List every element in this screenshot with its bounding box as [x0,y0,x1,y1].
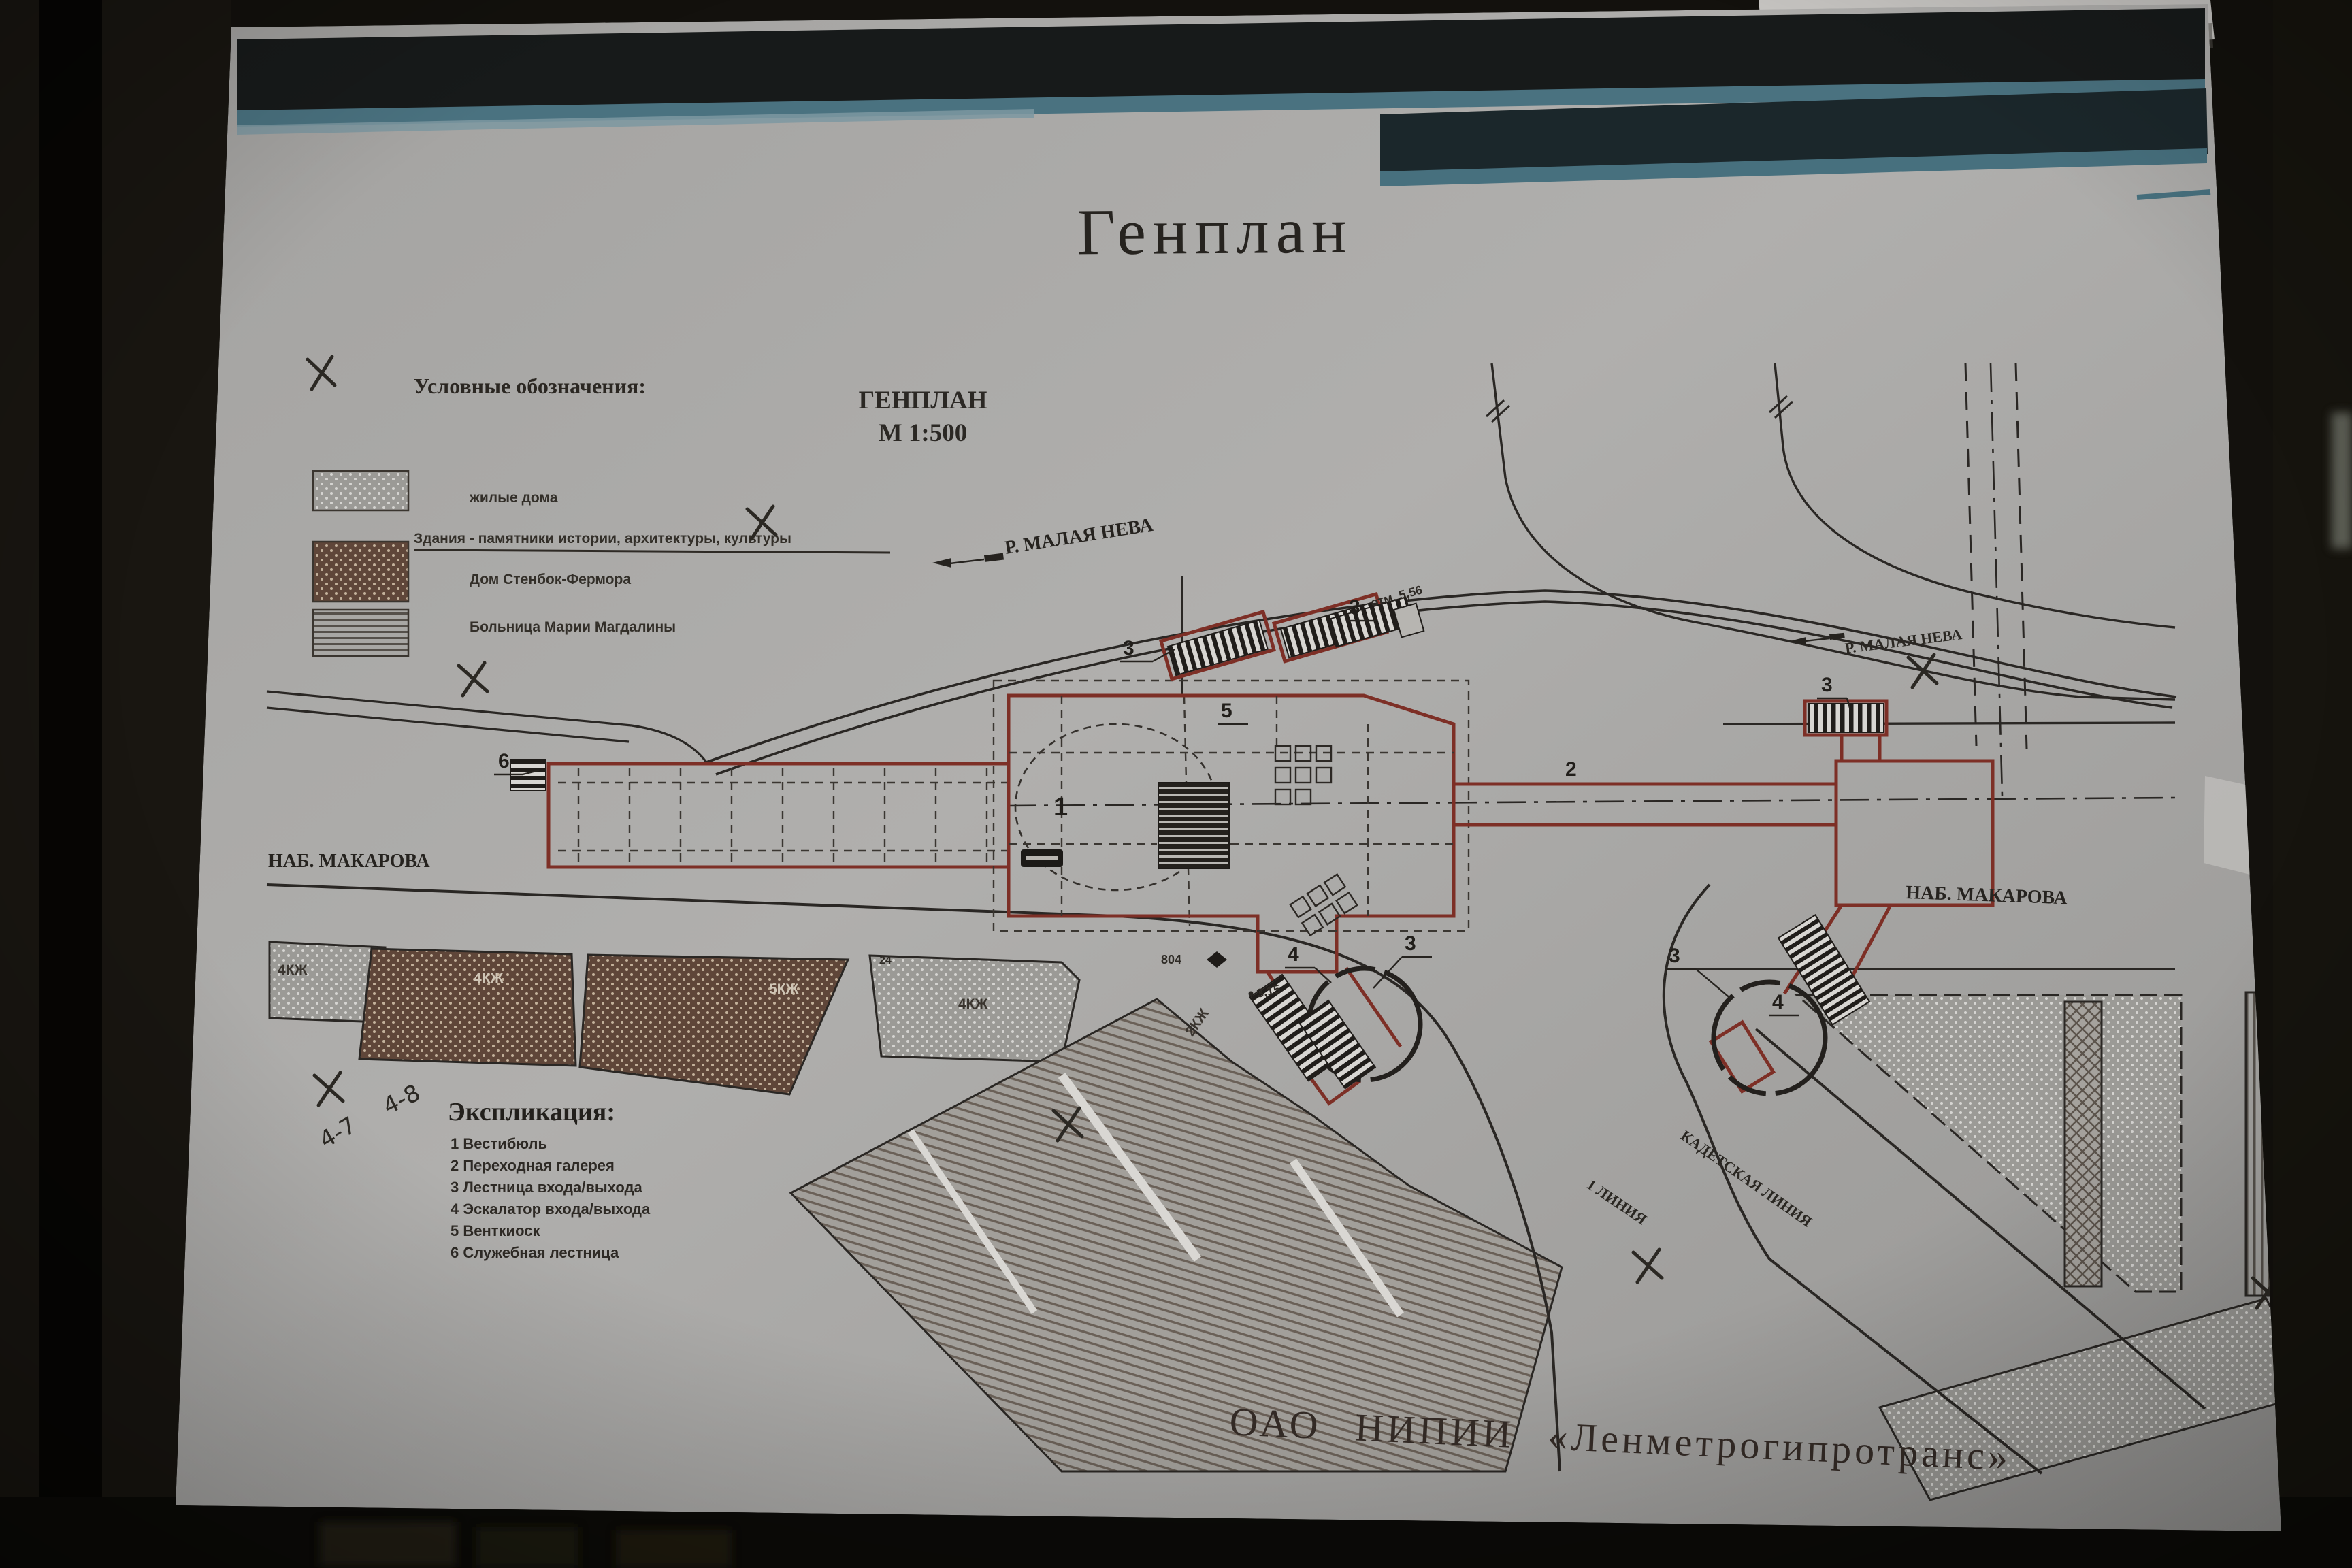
photo-of-genplan-poster: гипротранс» Генплан ГЕНПЛАН М 1:500 Усло… [0,0,2352,1568]
photo-vignette [0,0,2352,1568]
genplan-drawing: гипротранс» Генплан ГЕНПЛАН М 1:500 Усло… [0,0,2352,1568]
